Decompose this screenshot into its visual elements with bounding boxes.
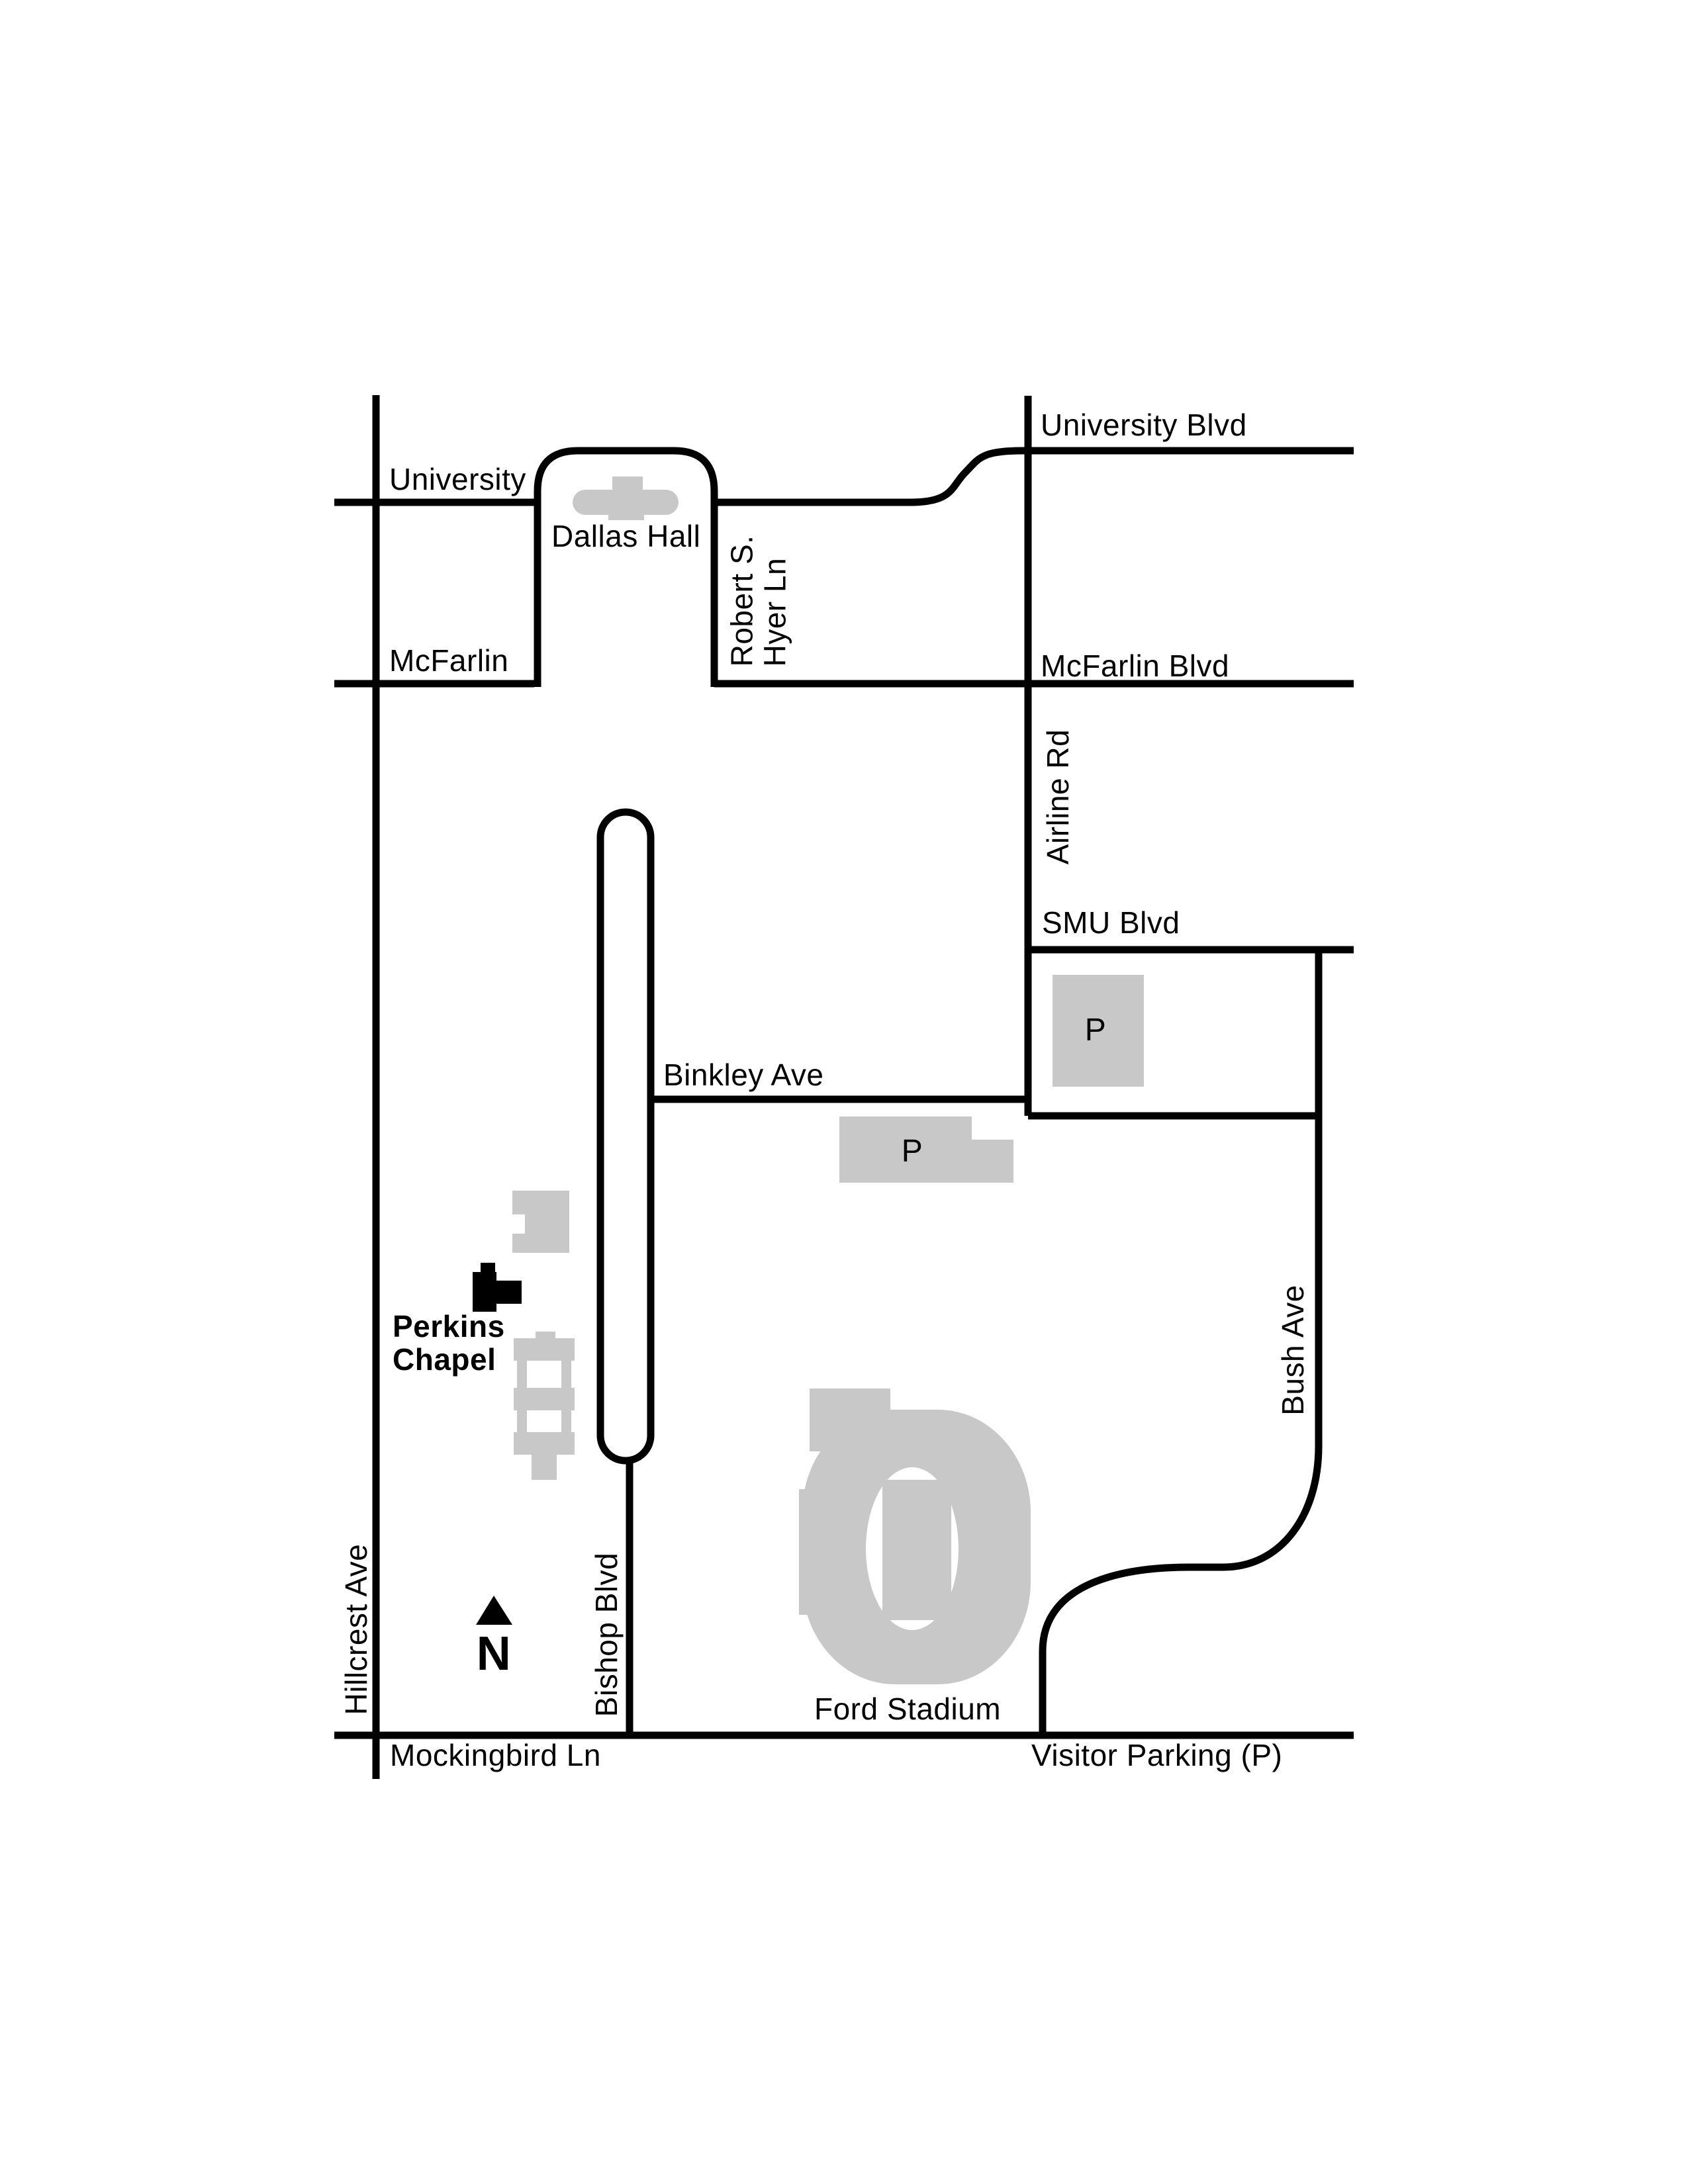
label-mcfarlin-blvd: McFarlin Blvd — [1041, 650, 1229, 683]
map-canvas — [0, 0, 1688, 2184]
label-binkley-ave: Binkley Ave — [663, 1059, 823, 1092]
north-arrow-icon — [476, 1596, 512, 1625]
label-perkins-chapel-line1: Perkins — [393, 1310, 505, 1343]
label-bush-ave: Bush Ave — [1277, 1285, 1310, 1416]
label-perkins-chapel-line2: Chapel — [393, 1343, 505, 1377]
perkins-chapel-building — [473, 1263, 522, 1312]
road-bishop-blvd-oval — [600, 812, 651, 1461]
label-bishop-blvd: Bishop Blvd — [590, 1553, 624, 1717]
campus-building-south-complex — [514, 1332, 575, 1480]
label-robert-s-hyer-ln-line1: Robert S. — [726, 535, 759, 667]
label-robert-s-hyer-ln: Robert S. Hyer Ln — [726, 535, 791, 667]
label-airline-rd: Airline Rd — [1042, 729, 1075, 864]
label-visitor-parking-legend: Visitor Parking (P) — [1031, 1739, 1282, 1772]
campus-map: University Blvd University Dallas Hall M… — [0, 0, 1688, 2184]
campus-building-north-of-chapel — [512, 1191, 569, 1253]
label-mcfarlin: McFarlin — [389, 645, 508, 678]
label-robert-s-hyer-ln-line2: Hyer Ln — [759, 535, 792, 667]
label-mockingbird-ln: Mockingbird Ln — [390, 1739, 601, 1772]
ford-stadium-shape — [799, 1388, 1031, 1684]
label-smu-blvd: SMU Blvd — [1042, 907, 1180, 940]
parking-lot-south — [839, 1116, 1013, 1183]
label-parking-p-south: P — [902, 1134, 923, 1169]
label-compass-north: N — [477, 1629, 512, 1680]
label-dallas-hall: Dallas Hall — [551, 520, 700, 553]
label-hillcrest-ave: Hillcrest Ave — [340, 1544, 373, 1715]
label-university: University — [389, 463, 526, 496]
dallas-hall-building-north-wing — [612, 477, 643, 496]
label-parking-p-north: P — [1085, 1013, 1107, 1048]
road-university-blvd — [718, 451, 1354, 502]
label-perkins-chapel: Perkins Chapel — [393, 1310, 505, 1376]
label-ford-stadium: Ford Stadium — [814, 1693, 1001, 1726]
label-university-blvd: University Blvd — [1041, 409, 1247, 442]
